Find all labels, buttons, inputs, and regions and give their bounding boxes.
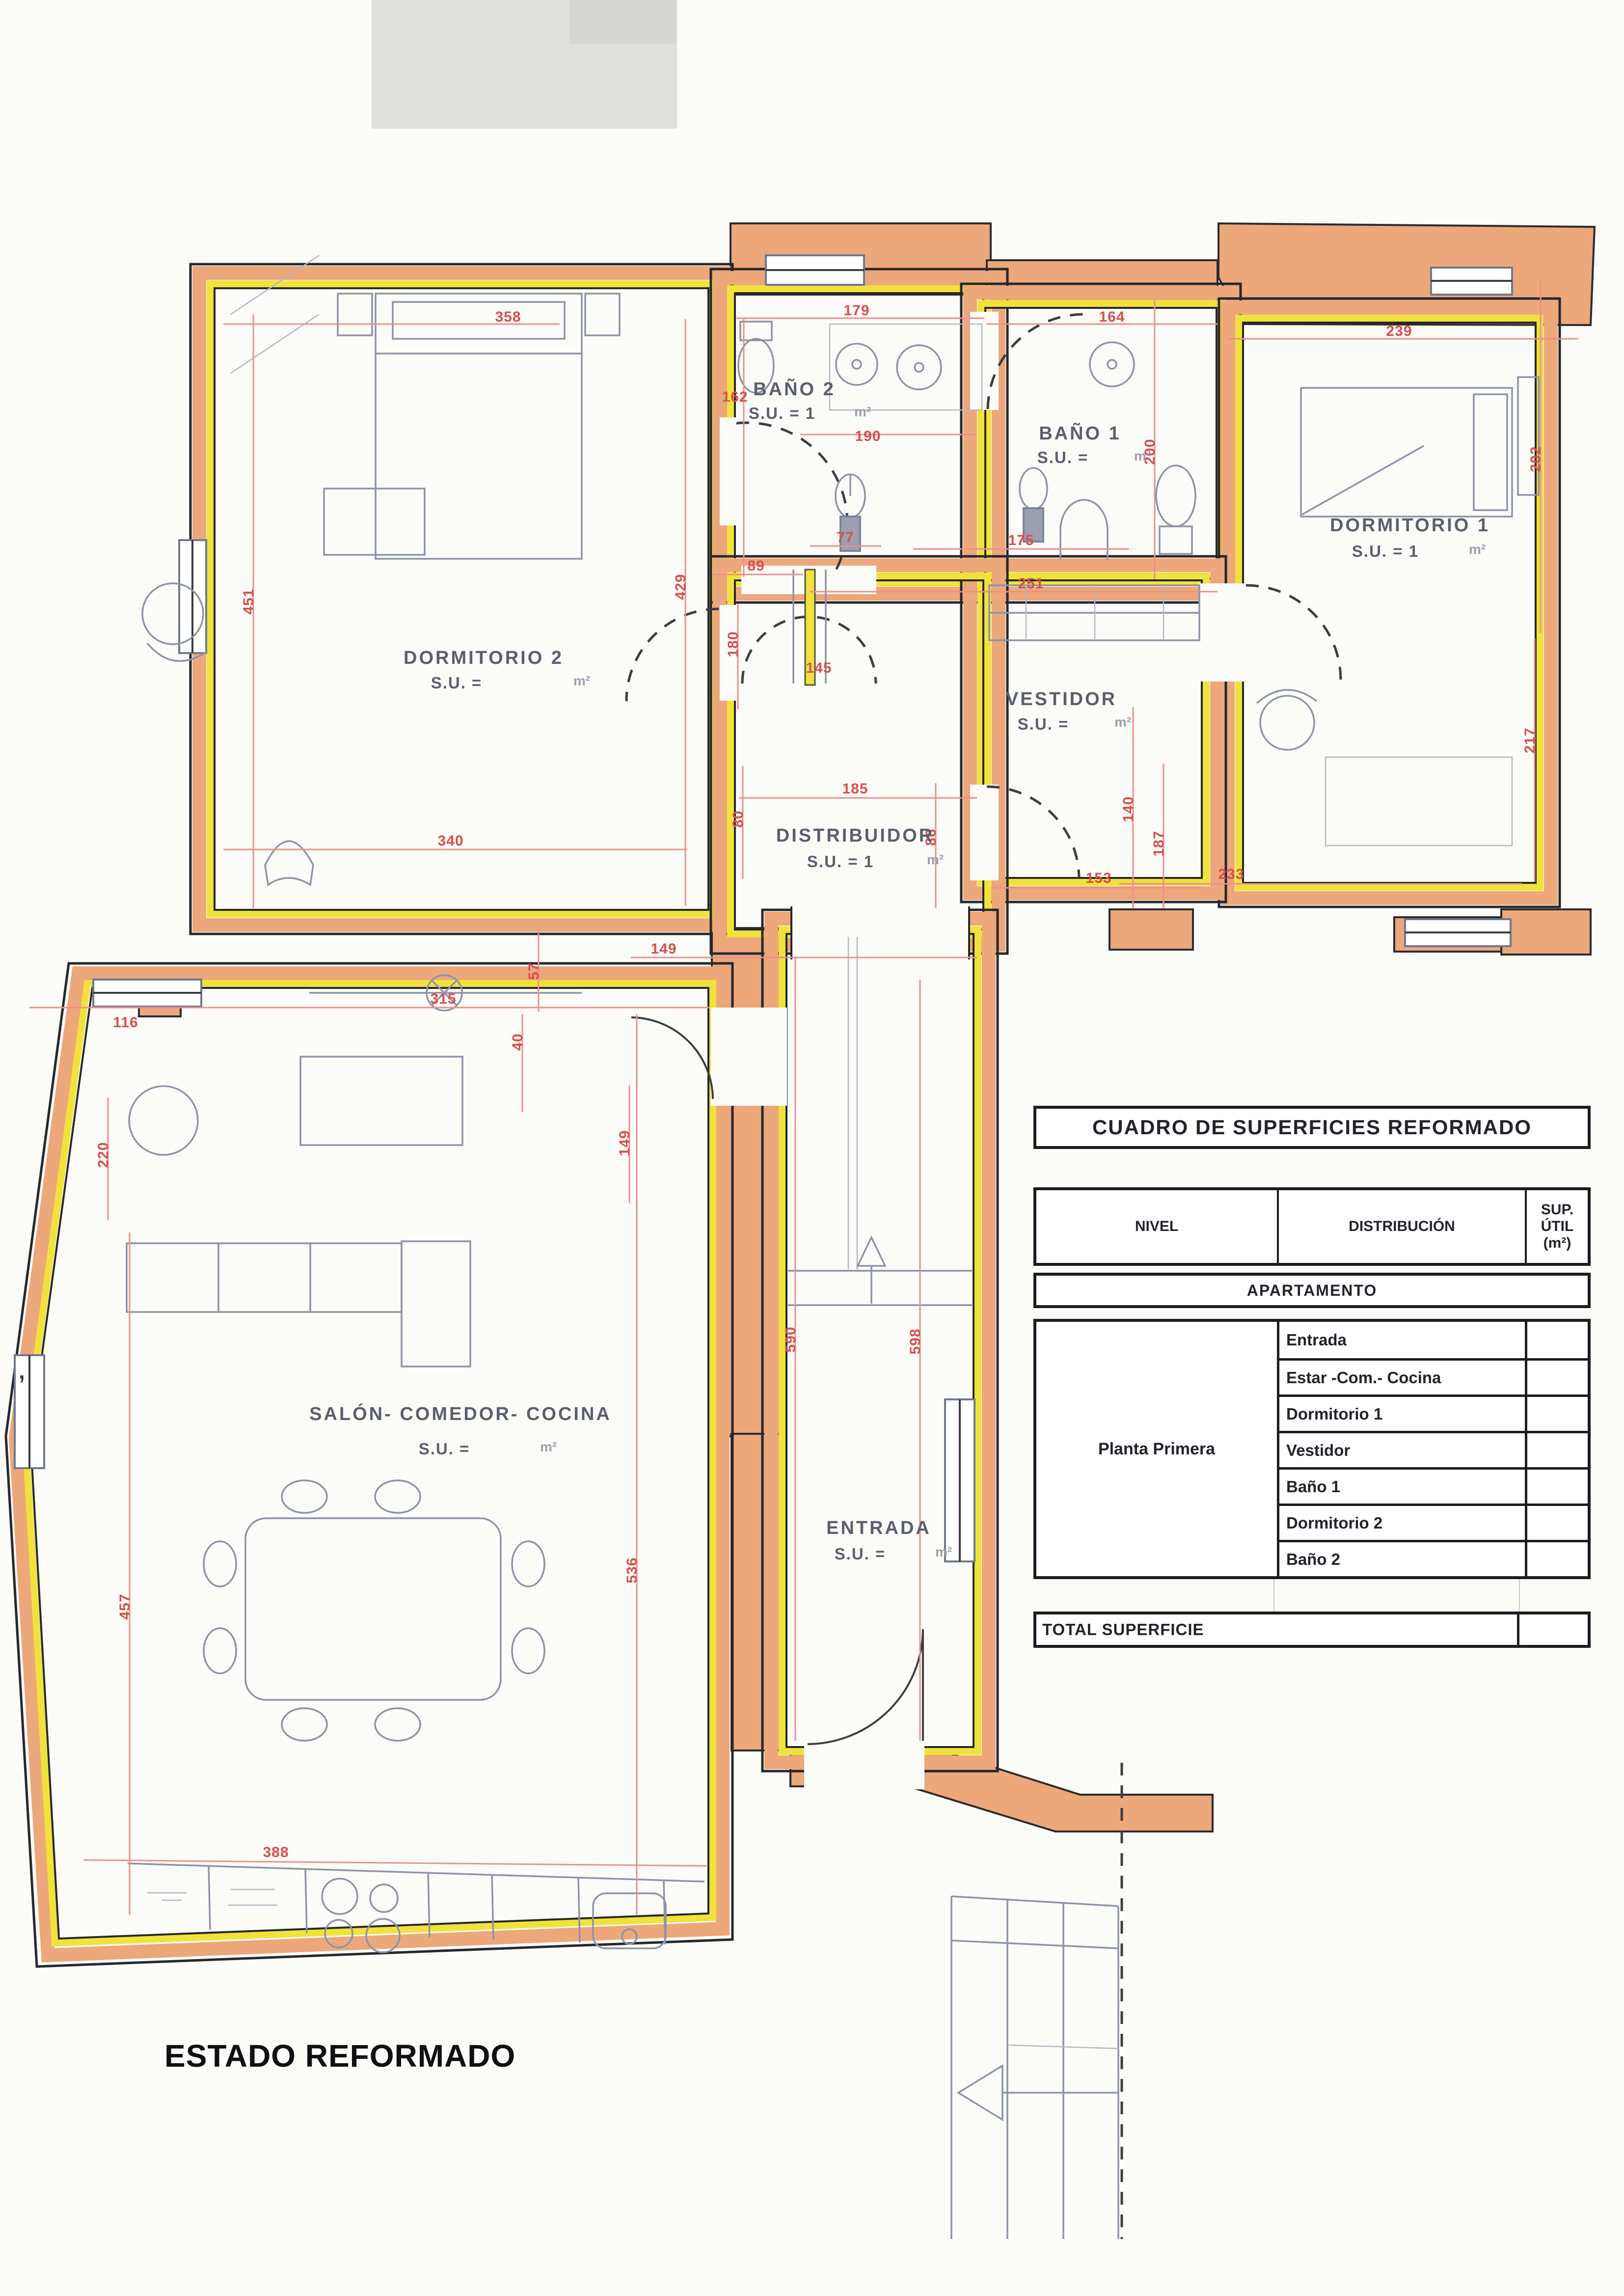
wall-layer — [771, 919, 989, 1762]
row-value — [1525, 1540, 1588, 1576]
wall-layer — [210, 284, 713, 914]
corridor-passage — [792, 906, 968, 959]
table-title: CUADRO DE SUPERFICIES REFORMADO — [1033, 1106, 1591, 1149]
room-label-bano1: BAÑO 1 — [1039, 422, 1121, 444]
room-label-vestidor: VESTIDOR — [1006, 689, 1117, 710]
dimension-label: 40 — [510, 1033, 526, 1050]
dimension-label: 190 — [855, 428, 881, 444]
wall-layer — [215, 288, 708, 910]
room-su-vestidor: S.U. = — [1018, 715, 1069, 733]
room-salon-walls — [6, 963, 732, 1967]
room-su-bano1: S.U. = — [1037, 448, 1089, 466]
surfaces-table: CUADRO DE SUPERFICIES REFORMADO NIVEL DI… — [1033, 1106, 1591, 1648]
row-value — [1525, 1431, 1588, 1467]
row-value — [1525, 1358, 1588, 1394]
dimension-label: 149 — [617, 1130, 633, 1156]
dimension-label: 451 — [241, 588, 257, 614]
wall-layer — [981, 576, 1206, 882]
row-label: Baño 1 — [1277, 1467, 1525, 1503]
appliance-labels-illegible — [147, 1889, 277, 1905]
window-icon — [1431, 268, 1512, 295]
total-row: TOTAL SUPERFICIE — [1033, 1612, 1591, 1648]
dimension-label: 220 — [95, 1142, 111, 1168]
stairwell-bottom-right — [951, 1763, 1122, 2239]
room-su-bano2: S.U. = 1 — [749, 404, 815, 422]
dimension-label: 590 — [783, 1326, 799, 1352]
room-su-distribuidor: S.U. = 1 — [807, 852, 874, 871]
nivel-cell: Planta Primera — [1036, 1322, 1277, 1576]
table-gap — [1033, 1149, 1591, 1187]
dimension-label: 175 — [1008, 532, 1034, 548]
dormitorio1-furniture — [1257, 377, 1539, 846]
room-unit: m² — [927, 852, 944, 867]
dimension-label: 388 — [263, 1844, 289, 1860]
window-icon — [945, 1399, 974, 1561]
door-arc-salon — [631, 1017, 713, 1099]
stairs-arrow-icon — [958, 2066, 1002, 2120]
dimension-label: 80 — [730, 810, 746, 827]
wall-layer — [782, 929, 978, 1751]
wall-layer — [735, 580, 983, 929]
dimension-label: 239 — [1386, 323, 1412, 339]
door-arc-dormitorio2 — [626, 609, 719, 701]
scanned-floorplan-page: 358 179 164 239 162 190 200 202 451 429 … — [0, 0, 1624, 2296]
room-label-distribuidor: DISTRIBUIDOR — [776, 825, 934, 846]
wall-layer — [1243, 323, 1536, 883]
dimension-label: 89 — [747, 558, 764, 574]
dimension-label: 536 — [624, 1557, 640, 1583]
row-label: Entrada — [1277, 1322, 1525, 1358]
dimension-label: 340 — [437, 833, 463, 849]
row-value — [1525, 1322, 1588, 1358]
room-label-entrada: ENTRADA — [826, 1518, 931, 1538]
dimension-label: 598 — [907, 1328, 923, 1354]
dimension-label: 180 — [725, 631, 741, 657]
door-arc-bano2 — [736, 423, 847, 573]
room-unit: m² — [935, 1544, 952, 1559]
total-value — [1517, 1614, 1588, 1645]
room-unit: m² — [573, 673, 590, 688]
window-icon — [1405, 919, 1511, 946]
dimension-label: 179 — [843, 302, 869, 319]
room-unit: m² — [1134, 448, 1151, 464]
room-su-salon: S.U. = — [419, 1440, 470, 1458]
dimension-label: 217 — [1522, 727, 1538, 753]
room-label-dormitorio1: DORMITORIO 1 — [1330, 515, 1490, 536]
wall-layer — [1219, 299, 1560, 907]
row-value — [1525, 1394, 1588, 1431]
row-value — [1525, 1467, 1588, 1503]
row-value — [1525, 1503, 1588, 1540]
dimension-label: 358 — [495, 309, 521, 325]
direction-arrow-icon — [858, 1237, 885, 1266]
dimension-label: 149 — [650, 941, 677, 957]
dimension-label: 57 — [526, 962, 542, 980]
dimension-label: 233 — [1218, 866, 1244, 882]
dimension-label: 140 — [1120, 796, 1137, 822]
dimension-label: 153 — [1085, 870, 1111, 886]
room-unit: m² — [854, 404, 871, 419]
window-icon — [766, 255, 864, 285]
dimension-label: 185 — [842, 781, 868, 797]
dimension-label: 145 — [806, 660, 832, 676]
salon-furniture — [127, 975, 582, 1741]
wall-layer — [786, 934, 974, 1747]
total-label: TOTAL SUPERFICIE — [1036, 1614, 1517, 1645]
window-icon — [93, 980, 201, 1007]
dimension-label: 429 — [673, 574, 689, 600]
dimension-label: 202 — [1528, 446, 1544, 472]
dining-table — [245, 1518, 501, 1700]
wall-layer — [199, 273, 724, 925]
room-dormitorio1-walls — [1219, 299, 1560, 907]
room-unit: m² — [1114, 714, 1131, 730]
door-arc-entrada — [808, 1629, 923, 1744]
wall-layer — [1239, 318, 1540, 887]
room-su-entrada: S.U. = — [835, 1545, 886, 1563]
row-label: Dormitorio 1 — [1277, 1394, 1525, 1431]
column-header-distribucion: DISTRIBUCIÓN — [1277, 1190, 1525, 1263]
scan-stray-mark: , — [19, 1358, 25, 1384]
room-su-dormitorio1: S.U. = 1 — [1352, 542, 1419, 560]
table-header-row: NIVEL DISTRIBUCIÓN SUP. ÚTIL (m²) — [1033, 1187, 1591, 1266]
dimension-label: 457 — [117, 1593, 133, 1619]
row-label: Estar -Com.- Cocina — [1277, 1358, 1525, 1394]
scan-shadow-2 — [569, 0, 677, 44]
column-header-sup-util: SUP. ÚTIL (m²) — [1525, 1190, 1588, 1263]
section-band-apartamento: APARTAMENTO — [1033, 1273, 1591, 1308]
wall-layer — [711, 556, 1007, 954]
dimension-label: 164 — [1099, 309, 1125, 325]
column-header-nivel: NIVEL — [1036, 1190, 1277, 1263]
room-label-dormitorio2: DORMITORIO 2 — [404, 648, 564, 668]
wall-layer — [731, 576, 988, 934]
wall-layer — [1228, 307, 1551, 898]
wall-layer — [720, 565, 999, 945]
dimension-label: 116 — [113, 1014, 138, 1031]
row-label: Dormitorio 2 — [1277, 1503, 1525, 1540]
dimension-label: 251 — [1018, 575, 1044, 592]
row-label: Vestidor — [1277, 1431, 1525, 1467]
room-unit: m² — [540, 1439, 557, 1454]
room-unit: m² — [1469, 542, 1486, 557]
room-distribuidor-walls — [711, 556, 1007, 954]
entrada-stairs — [788, 937, 973, 1305]
room-label-bano2: BAÑO 2 — [753, 378, 836, 400]
door-arc-dormitorio1 — [1246, 585, 1341, 680]
drawing-title: ESTADO REFORMADO — [164, 2038, 515, 2074]
room-su-dormitorio2: S.U. = — [431, 674, 483, 692]
dimension-label: 77 — [837, 529, 854, 546]
dimension-label: 162 — [722, 389, 748, 405]
dimension-label: 315 — [430, 991, 456, 1007]
table-gap — [1033, 1579, 1591, 1612]
table-body: Planta Primera Entrada Estar -Com.- Coci… — [1033, 1319, 1591, 1579]
room-label-salon: SALÓN- COMEDOR- COCINA — [309, 1403, 612, 1424]
dimension-label: 187 — [1151, 830, 1167, 856]
row-label: Baño 2 — [1277, 1540, 1525, 1576]
